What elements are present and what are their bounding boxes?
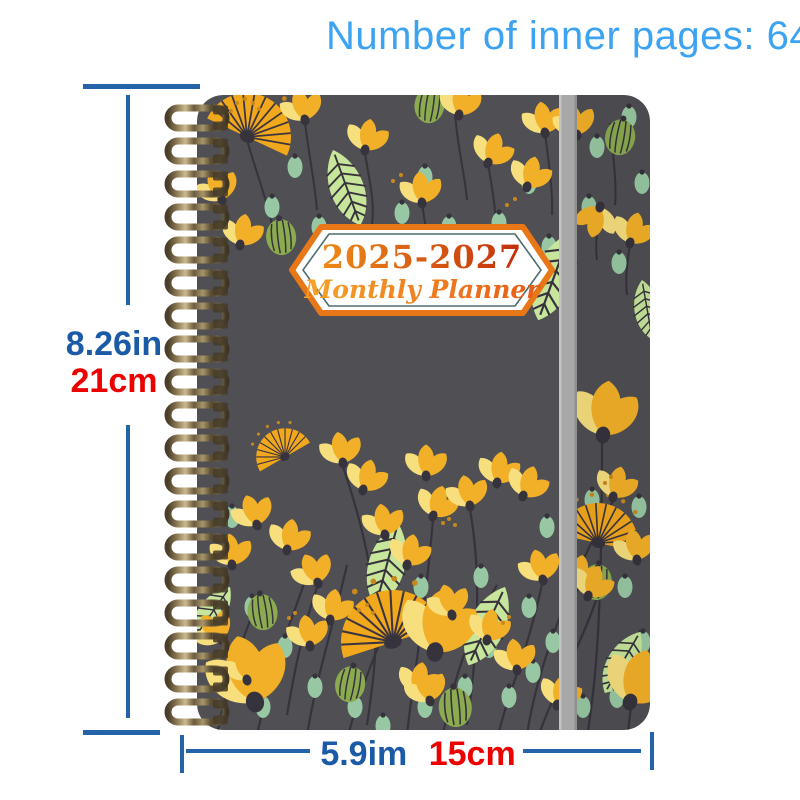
width-cm-label: 15cm [429,735,516,773]
planner-notebook: 2025-2027 Monthly Planner [168,85,660,740]
planner-cover: 2025-2027 Monthly Planner [181,85,660,740]
planner-product-image: 2025-2027 Monthly Planner [155,85,660,740]
width-dimension-labels: 5.9im 15cm [180,735,656,774]
height-dim-line-lower [126,425,130,718]
title-badge: 2025-2027 Monthly Planner [292,227,552,313]
cover-shading [577,95,650,730]
width-inches-label: 5.9im [320,735,407,773]
badge-subtitle-text: Monthly Planner [304,275,542,304]
height-dim-line-upper [126,95,130,305]
page-title: Number of inner pages: 64 [326,14,800,59]
badge-years-text: 2025-2027 [322,238,522,276]
height-dim-bottom-cap [83,730,160,735]
elastic-band [559,95,577,730]
